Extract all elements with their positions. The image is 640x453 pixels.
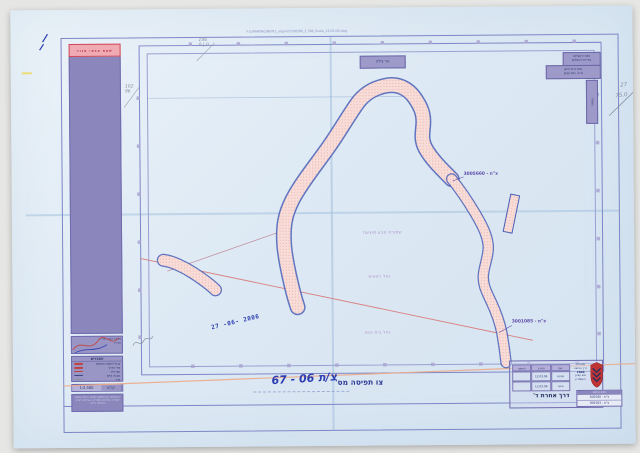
- org-text: מנהלת דרך הגישה 1600 גוש עציון והשומרון: [572, 363, 589, 382]
- legend-row-swatch: [74, 367, 83, 368]
- legend-row-swatch: [74, 363, 83, 364]
- table-cell: [512, 371, 531, 381]
- legend-row-swatch: [74, 379, 83, 380]
- scale-box: 1:2,500 קנ"מ: [71, 384, 123, 392]
- unit-name: דרך אחרת ד': [523, 392, 579, 399]
- unit-emblem-icon: [590, 362, 603, 388]
- area-label-reserve: שמורת טבע מוצעת: [363, 229, 402, 234]
- sidebar-warning-box: שטח צבאי סגור: [69, 44, 121, 57]
- ref-item: צ"ת - 300583: [577, 401, 621, 406]
- notes-text: ההעתקה או השימוש במפה זו ללא אישור אסורה…: [74, 396, 120, 406]
- pencil-note-bottom: 96: [125, 90, 134, 95]
- side-tab-label: מפתח: [590, 98, 593, 106]
- table-cell: שרטט: [551, 371, 570, 381]
- area-label-stream1: נחל רפאים: [368, 273, 390, 278]
- pencil-note-topleft: 146 0 | 0: [199, 39, 209, 49]
- org-line: והשומרון: [572, 378, 589, 382]
- pencil-note-bottom: 75.0: [615, 93, 629, 100]
- sidebar-purple-strip: [69, 57, 123, 334]
- sidebar-warning-text: שטח צבאי סגור: [77, 48, 113, 52]
- approval-table: שם תאריך חתימה שרטט 12.03.06 אישר 12.03.…: [512, 364, 570, 391]
- pencil-note-bottom: 0 | 0: [199, 44, 209, 49]
- pencil-note-left: 102 96: [125, 85, 134, 95]
- signature-box-line2: תאריך: [99, 341, 121, 345]
- table-cell: 12.03.06: [532, 381, 551, 391]
- legend-row: גדר: [72, 377, 122, 381]
- table-cell: אישר: [551, 381, 570, 391]
- region-box-bethlehem: נפת בית לחם מ.א. גוש עציון: [546, 65, 601, 79]
- side-tab-box: מפתח: [586, 80, 598, 124]
- pen-check-mark: [39, 34, 47, 50]
- pencil-note-right: 27 75.0: [614, 83, 629, 100]
- table-cell: 12.03.06: [531, 371, 550, 381]
- highlight-dash: [22, 72, 32, 74]
- scanned-map-sheet: F:\DRAWING\NEW1_aligned\300580_2,500_Sca…: [0, 0, 640, 453]
- scale-value: 1:2,500: [72, 385, 101, 391]
- legend-box: הסברים גבול השטח התפוס ציר הדרך עצי זית …: [71, 356, 123, 382]
- refs-box: צווים קיימים צ"ת - 300580 צ"ת - 300583: [576, 390, 622, 407]
- scale-label: קנ"מ: [101, 385, 122, 391]
- paper-sheet: F:\DRAWING\NEW1_aligned\300580_2,500_Sca…: [10, 6, 635, 449]
- area-label-stream2: נחל בית הנם: [365, 329, 391, 334]
- top-road-box: הר גילה: [360, 55, 406, 68]
- pencil-note-top: 27: [620, 83, 628, 90]
- legend-row-swatch: [74, 371, 83, 372]
- legend-row-label: גדר: [116, 377, 121, 381]
- notes-box: ההעתקה או השימוש במפה זו ללא אישור אסורה…: [71, 394, 123, 412]
- legend-row-swatch: [74, 375, 83, 376]
- table-cell: [512, 381, 531, 391]
- region-box-line2: עיריית ירושלים: [572, 59, 591, 63]
- region-box-line2: מ.א. גוש עציון: [564, 72, 583, 76]
- signature-box: מפקד כוחות צה"ל תאריך: [71, 336, 123, 354]
- road-label-top: צ"ת - 3005660: [464, 172, 498, 177]
- header-filename: F:\DRAWING\NEW1_aligned\300580_2,500_Sca…: [246, 28, 446, 34]
- road-label-bottom: צ"ת - 3001085: [512, 319, 546, 324]
- top-road-box-label: הר גילה: [376, 60, 390, 65]
